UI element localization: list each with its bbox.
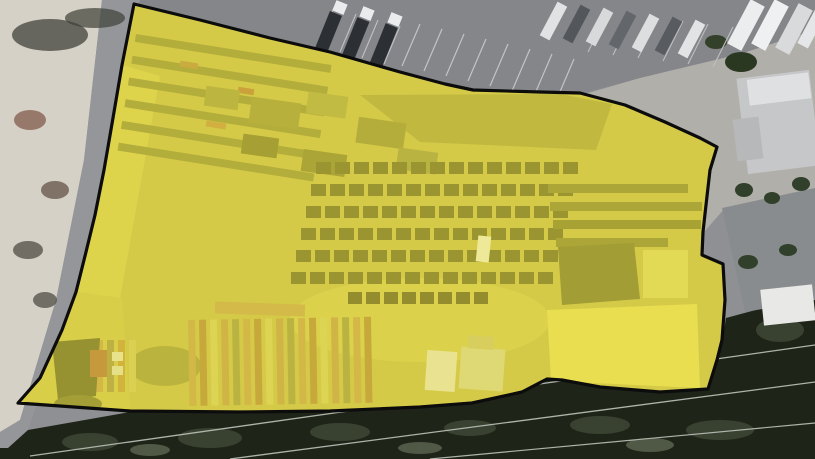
shrub <box>738 255 758 269</box>
debris-pile <box>33 292 57 308</box>
tree-blob <box>310 423 370 441</box>
shrub <box>779 244 797 256</box>
building-white-small <box>760 284 815 325</box>
tree-blob <box>570 416 630 434</box>
debris-shadow <box>65 8 125 28</box>
shrub <box>764 192 780 204</box>
shrub <box>735 183 753 197</box>
debris-pile <box>14 110 46 130</box>
debris-pile <box>41 181 69 199</box>
tree-blob <box>130 444 170 456</box>
building-annex <box>733 117 764 162</box>
map-viewport <box>0 0 815 459</box>
palm-tree <box>705 35 727 49</box>
tree-blob <box>62 433 118 451</box>
shrub <box>792 177 810 191</box>
satellite-image-canvas[interactable] <box>0 0 815 459</box>
tree-blob <box>398 442 442 454</box>
palm-tree <box>725 52 757 72</box>
debris-pile <box>13 241 43 259</box>
